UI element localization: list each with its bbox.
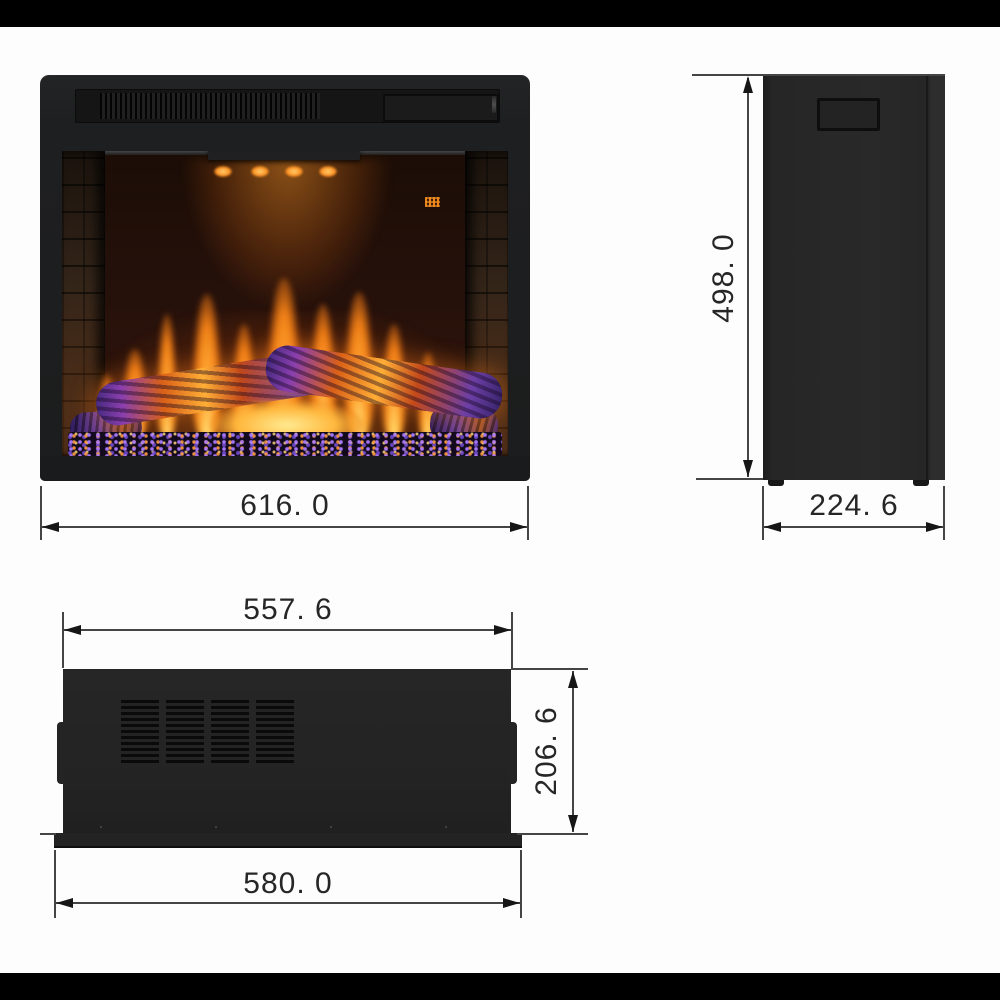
dim-arrow-right-icon [510, 522, 527, 532]
dim-front-width-label: 616. 0 [185, 487, 385, 525]
vent-column [211, 700, 249, 764]
downlight-spot [214, 166, 232, 177]
dim-bottom-depth-label: 206. 6 [528, 651, 566, 851]
dim-arrow-right-icon [494, 625, 511, 635]
dimension-drawing: 616. 0 498. 0 224. 6 [0, 0, 1000, 1000]
dim-side-depth-line [764, 526, 944, 528]
side-foot-back [913, 480, 929, 486]
side-tab-left [57, 722, 64, 784]
dim-side-height-ext-top [692, 74, 945, 76]
control-panel [383, 94, 499, 122]
side-handle-cutout [817, 98, 880, 131]
dim-bottom-depth-line [572, 671, 574, 832]
screw-dot [100, 826, 102, 828]
letterbox-bottom [0, 973, 1000, 1000]
dim-front-width-ext-right [527, 486, 529, 540]
dim-arrow-up-icon [568, 671, 578, 688]
screw-dot [215, 826, 217, 828]
power-indicator [492, 96, 496, 113]
dim-arrow-down-icon [743, 460, 753, 477]
mounting-flange [54, 833, 522, 848]
dim-side-height-ext-bottom [696, 478, 763, 480]
dim-side-depth-label: 224. 6 [754, 487, 954, 525]
screw-dot [445, 826, 447, 828]
letterbox-top [0, 0, 1000, 27]
downlight-spot [285, 166, 303, 177]
side-view [763, 75, 945, 480]
dim-arrow-left-icon [42, 522, 59, 532]
vent-column [256, 700, 294, 764]
screw-dot [330, 826, 332, 828]
side-seam [926, 75, 928, 480]
dim-side-height-label: 498. 0 [705, 178, 743, 378]
dim-arrow-left-icon [64, 625, 81, 635]
dim-arrow-down-icon [568, 815, 578, 832]
downlight-spot [251, 166, 269, 177]
light-valance [208, 151, 360, 160]
downlight-spot [319, 166, 337, 177]
front-bottom-rail [40, 456, 530, 481]
dim-front-width-line [42, 526, 527, 528]
dim-arrow-left-icon [56, 898, 73, 908]
top-vent-band [75, 89, 500, 123]
dim-bottom-flange-ext-stub [40, 833, 56, 835]
dim-side-height-line [747, 78, 749, 477]
dim-bottom-width-ext-left [62, 612, 64, 668]
bottom-view [54, 669, 522, 848]
status-display [425, 197, 440, 207]
vent-column [166, 700, 204, 764]
side-tab-right [510, 722, 517, 784]
dim-arrow-right-icon [503, 898, 520, 908]
dim-bottom-width-line [64, 629, 511, 631]
dim-bottom-width-label: 557. 6 [188, 591, 388, 629]
side-foot-front [768, 480, 784, 486]
dim-bottom-flange-label: 580. 0 [188, 865, 388, 903]
dim-arrow-up-icon [743, 76, 753, 93]
dim-bottom-width-ext-right [511, 612, 513, 668]
front-vent-grille [100, 93, 320, 119]
front-view [40, 75, 530, 481]
dim-bottom-flange-ext-right [520, 850, 522, 918]
side-edge-strip [930, 75, 945, 480]
ember-bed [68, 432, 502, 456]
bottom-body [63, 669, 511, 833]
firebox [62, 151, 508, 456]
vent-column [121, 700, 159, 764]
